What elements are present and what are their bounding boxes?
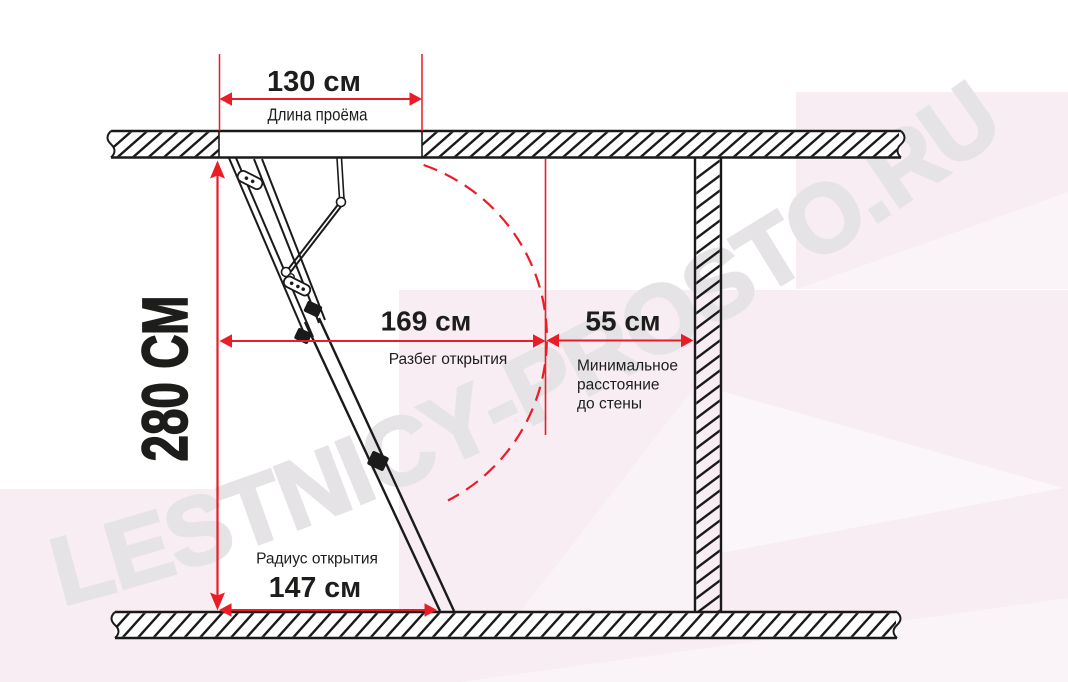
svg-text:расстояние: расстояние	[577, 377, 660, 394]
svg-text:55 см: 55 см	[585, 306, 660, 337]
svg-text:130 см: 130 см	[267, 66, 361, 98]
svg-text:Разбег открытия: Разбег открытия	[389, 351, 508, 368]
svg-text:Минимальное: Минимальное	[577, 358, 678, 375]
svg-text:до стены: до стены	[577, 396, 642, 413]
svg-text:Радиус открытия: Радиус открытия	[256, 551, 378, 568]
svg-text:Длина проёма: Длина проёма	[268, 105, 368, 125]
svg-text:280 СМ: 280 СМ	[129, 296, 201, 462]
svg-text:169 см: 169 см	[381, 306, 472, 337]
svg-text:147 см: 147 см	[269, 572, 361, 604]
